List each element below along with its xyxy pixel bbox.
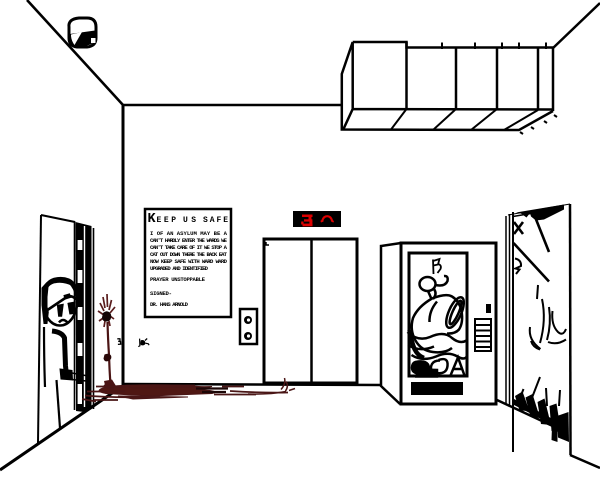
svg-text:SAFE: SAFE xyxy=(203,216,228,225)
svg-text:UPGRADED AND IDENTIFIED: UPGRADED AND IDENTIFIED xyxy=(150,265,209,272)
svg-text:SIGNED-: SIGNED- xyxy=(150,290,172,297)
svg-text:DR. HANS ARNOLD: DR. HANS ARNOLD xyxy=(150,301,189,308)
svg-text:CAT OUT DOWN THERE THE BACK EA: CAT OUT DOWN THERE THE BACK EAT xyxy=(150,251,228,258)
svg-text:NOW KEEP SAFE WITH WARD WARD: NOW KEEP SAFE WITH WARD WARD xyxy=(150,258,228,265)
svg-text:CAN'T TAKE CARE OF IT WE STOP: CAN'T TAKE CARE OF IT WE STOP A xyxy=(150,244,228,251)
svg-text:CAN'T HARDLY ENTER THE WARDS W: CAN'T HARDLY ENTER THE WARDS WE xyxy=(150,237,228,244)
svg-text:EEP: EEP xyxy=(157,216,177,225)
svg-text:K: K xyxy=(148,212,157,227)
svg-text:I OF AN ASYLUM MAY BE A: I OF AN ASYLUM MAY BE A xyxy=(150,230,228,237)
svg-text:PRAYER UNSTOPPABLE: PRAYER UNSTOPPABLE xyxy=(150,276,206,283)
